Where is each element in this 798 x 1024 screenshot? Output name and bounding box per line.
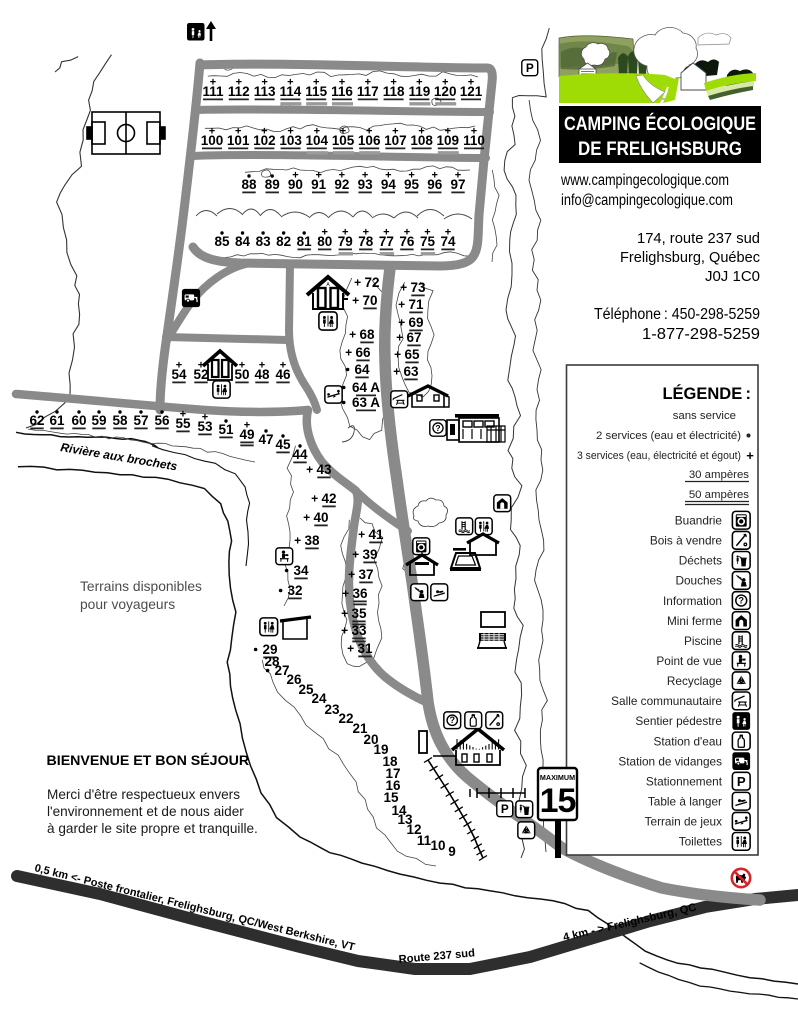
svg-text:+: + [306,463,313,477]
svg-text:Recyclage: Recyclage [667,674,723,688]
svg-text:119: 119 [409,84,431,99]
svg-text:79: 79 [338,234,353,249]
svg-text:32: 32 [287,583,302,598]
svg-text:89: 89 [265,177,280,192]
svg-text:?: ? [435,423,440,433]
svg-text:108: 108 [410,133,433,148]
svg-text:78: 78 [358,234,374,249]
svg-text:+: + [311,492,318,506]
svg-text:110: 110 [463,133,485,148]
svg-text:64: 64 [354,362,370,377]
svg-text:104: 104 [306,133,329,148]
svg-text:www.campingecologique.com: www.campingecologique.com [560,172,729,189]
svg-text:66: 66 [355,345,371,360]
svg-text:31: 31 [357,641,373,656]
svg-text:Information: Information [663,594,722,608]
svg-text:Station d'eau: Station d'eau [653,734,722,748]
svg-text:92: 92 [334,177,349,192]
svg-text:Merci d'être respectueux enver: Merci d'être respectueux envers [47,787,240,802]
svg-text:77: 77 [379,234,394,249]
svg-text:+: + [398,298,405,312]
svg-text:42: 42 [321,491,336,506]
svg-text:103: 103 [279,133,302,148]
svg-text:Station de vidanges: Station de vidanges [618,754,722,768]
svg-text:96: 96 [427,177,443,192]
svg-text:76: 76 [399,234,415,249]
svg-text:P: P [526,61,534,75]
svg-text:52: 52 [193,367,208,382]
svg-text:93: 93 [358,177,374,192]
svg-text:MAXIMUM: MAXIMUM [540,773,575,782]
svg-text:38: 38 [304,533,320,548]
svg-text:50: 50 [234,367,249,382]
svg-text:22: 22 [338,711,353,726]
svg-text:105: 105 [332,133,355,148]
svg-text:Buandrie: Buandrie [675,514,723,528]
svg-text:+: + [396,331,403,345]
svg-text:30 ampères: 30 ampères [689,469,749,481]
svg-text:54: 54 [171,367,187,382]
svg-text:Mini ferme: Mini ferme [667,614,723,628]
svg-text:113: 113 [254,84,276,99]
svg-text:40: 40 [313,510,328,525]
svg-text:111: 111 [202,84,224,99]
svg-text:+: + [349,328,356,342]
svg-text:75: 75 [420,234,436,249]
svg-text:82: 82 [276,234,291,249]
svg-text:37: 37 [358,567,373,582]
svg-text:46: 46 [275,367,291,382]
svg-text:3 services (eau, électricité e: 3 services (eau, électricité et égout) [577,450,741,462]
svg-text:70: 70 [362,293,377,308]
svg-text:63: 63 [403,364,419,379]
svg-text:88: 88 [241,177,257,192]
svg-text:+: + [345,346,352,360]
svg-text:72: 72 [364,275,379,290]
svg-text:+: + [348,568,355,582]
svg-text:109: 109 [437,133,460,148]
svg-text:43: 43 [316,462,332,477]
svg-text:53: 53 [197,419,213,434]
svg-text:36: 36 [352,586,368,601]
svg-text:61: 61 [49,413,65,428]
svg-text:69: 69 [408,315,423,330]
svg-text:106: 106 [358,133,381,148]
svg-text:LÉGENDE :: LÉGENDE : [662,384,751,403]
svg-text:94: 94 [381,177,397,192]
svg-text:51: 51 [218,422,234,437]
svg-text:107: 107 [384,133,407,148]
svg-text:56: 56 [154,413,170,428]
svg-text:114: 114 [280,84,302,99]
svg-text:62: 62 [29,413,44,428]
svg-text:+: + [294,534,301,548]
svg-text:1-877-298-5259: 1-877-298-5259 [642,326,760,343]
svg-text:Terrains disponibles: Terrains disponibles [80,579,202,594]
svg-text:+: + [341,624,348,638]
svg-text:121: 121 [460,84,483,99]
svg-text:info@campingecologique.com: info@campingecologique.com [561,192,733,209]
svg-text:49: 49 [239,427,254,442]
svg-text:11: 11 [417,833,432,848]
svg-text:sans service: sans service [673,410,736,422]
svg-text:Bois à vendre: Bois à vendre [650,534,723,548]
svg-text:85: 85 [214,234,230,249]
svg-text:Téléphone : 450-298-5259: Téléphone : 450-298-5259 [594,306,760,323]
svg-text:35: 35 [351,606,367,621]
svg-text:+: + [342,587,349,601]
svg-text:34: 34 [293,563,309,578]
svg-text:117: 117 [357,84,379,99]
svg-text:Frelighsburg, Québec: Frelighsburg, Québec [620,249,760,266]
svg-text:?: ? [450,715,455,725]
svg-text:Table à langer: Table à langer [648,795,722,809]
svg-text:DE FRELIGHSBURG: DE FRELIGHSBURG [578,139,742,160]
svg-text:+: + [303,511,310,525]
svg-text:116: 116 [331,84,353,99]
svg-text:Déchets: Déchets [679,554,722,568]
svg-text:102: 102 [253,133,276,148]
svg-text:J0J 1C0: J0J 1C0 [705,268,760,285]
svg-text:BIENVENUE ET BON SÉJOUR: BIENVENUE ET BON SÉJOUR [47,752,250,769]
svg-text:+: + [341,607,348,621]
svg-text:P: P [501,802,509,816]
svg-text:48: 48 [254,367,270,382]
svg-text:Point de vue: Point de vue [656,654,722,668]
svg-text:97: 97 [450,177,465,192]
svg-text:+: + [358,528,365,542]
svg-text:95: 95 [404,177,420,192]
svg-text:100: 100 [201,133,224,148]
svg-text:CAMPING ÉCOLOGIQUE: CAMPING ÉCOLOGIQUE [564,113,756,135]
svg-text:80: 80 [317,234,332,249]
svg-text:67: 67 [406,330,421,345]
svg-text:68: 68 [359,327,375,342]
svg-text:Sentier pédestre: Sentier pédestre [635,714,722,728]
svg-text:+: + [746,448,754,463]
svg-text:81: 81 [297,234,313,249]
svg-text:174, route 237 sud: 174, route 237 sud [637,230,760,247]
svg-text:33: 33 [351,623,367,638]
svg-text:118: 118 [383,84,405,99]
svg-text:90: 90 [288,177,303,192]
svg-text:115: 115 [305,84,327,99]
svg-text:44: 44 [292,447,308,462]
svg-text:pour voyageurs: pour voyageurs [80,597,175,612]
svg-text:55: 55 [175,416,191,431]
svg-text:Piscine: Piscine [684,634,722,648]
svg-text:+: + [393,365,400,379]
svg-text:120: 120 [434,84,457,99]
svg-text:65: 65 [404,347,420,362]
svg-text:+: + [352,294,359,308]
svg-text:41: 41 [368,527,384,542]
svg-text:45: 45 [275,437,291,452]
svg-text:?: ? [738,596,744,606]
svg-text:57: 57 [133,413,148,428]
svg-text:47: 47 [258,432,273,447]
svg-text:10: 10 [430,838,445,853]
svg-text:+: + [352,548,359,562]
svg-text:60: 60 [71,413,86,428]
svg-text:2 services (eau et électricité: 2 services (eau et électricité) [596,430,741,442]
svg-text:P: P [737,774,746,789]
svg-text:+: + [394,348,401,362]
svg-text:l'environnement et de nous aid: l'environnement et de nous aider [47,804,244,819]
svg-text:59: 59 [91,413,106,428]
svg-text:+: + [347,642,354,656]
svg-text:74: 74 [440,234,456,249]
svg-text:Douches: Douches [675,574,722,588]
svg-text:Stationnement: Stationnement [646,774,723,788]
svg-text:58: 58 [112,413,128,428]
svg-text:+: + [354,276,361,290]
svg-text:+: + [400,281,407,295]
svg-text:84: 84 [235,234,251,249]
svg-text:Terrain de jeux: Terrain de jeux [645,815,722,829]
svg-text:73: 73 [410,280,426,295]
svg-text:9: 9 [448,844,456,859]
svg-text:39: 39 [362,547,377,562]
svg-text:64 A: 64 A [352,380,380,395]
svg-text:Salle communautaire: Salle communautaire [611,694,722,708]
svg-text:15: 15 [540,782,576,820]
svg-text:à garder le site propre et tra: à garder le site propre et tranquille. [47,821,258,836]
svg-text:91: 91 [311,177,327,192]
svg-text:+: + [398,316,405,330]
svg-text:112: 112 [228,84,250,99]
svg-text:Toilettes: Toilettes [679,835,722,849]
svg-text:83: 83 [256,234,272,249]
svg-text:63 A: 63 A [352,395,380,410]
svg-text:50 ampères: 50 ampères [689,489,749,501]
svg-text:71: 71 [408,297,424,312]
svg-text:101: 101 [227,133,250,148]
